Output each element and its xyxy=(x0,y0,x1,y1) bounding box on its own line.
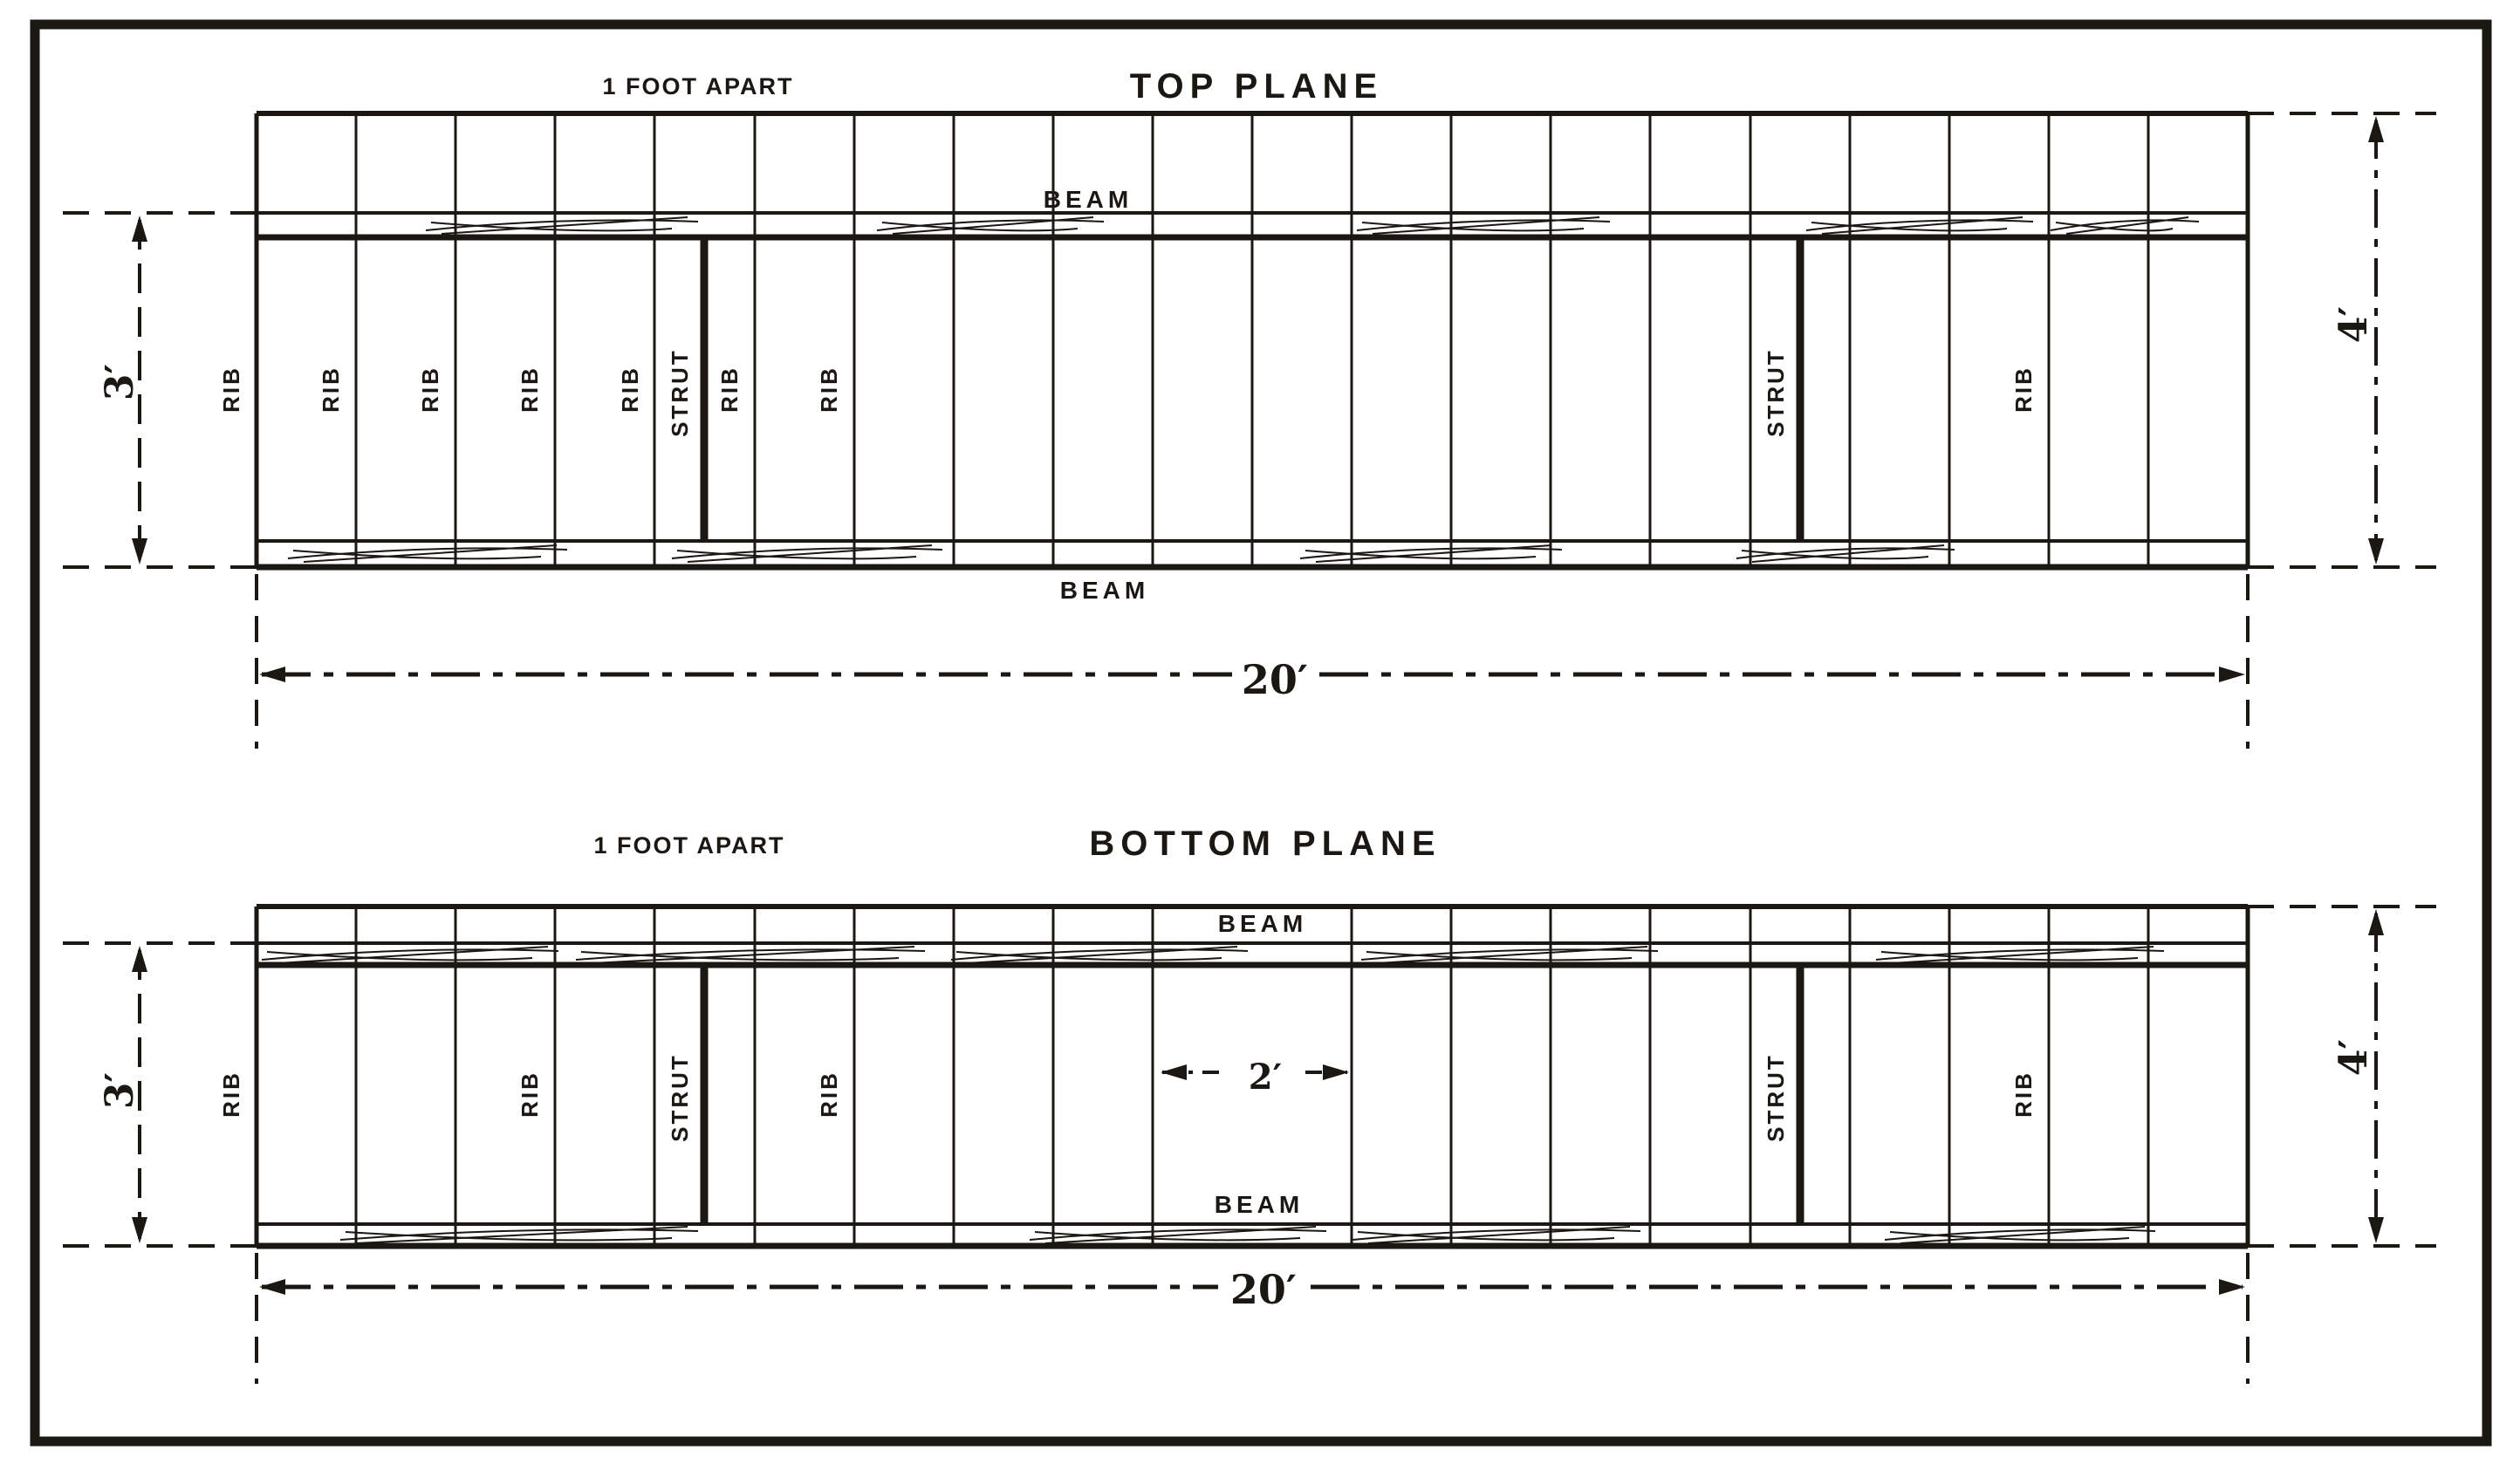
bottom-plane-chord-dimension: 4′ xyxy=(2248,907,2436,1246)
arrowhead-up xyxy=(132,946,147,972)
top-plane-front-beam-label: BEAM xyxy=(1044,186,1133,213)
strut-label: STRUT xyxy=(1763,348,1789,437)
top-plane-span-dimension: 20′ xyxy=(257,574,2248,749)
depth-value: 3′ xyxy=(98,1072,142,1109)
rib-label: RIB xyxy=(417,366,443,413)
rib-label: RIB xyxy=(2010,1071,2037,1118)
arrowhead-left xyxy=(259,667,285,682)
rib-label: RIB xyxy=(517,1071,543,1118)
bottom-plane-span-dimension: 20′ xyxy=(257,1253,2248,1384)
strut-label: STRUT xyxy=(1763,1053,1789,1142)
top-plane-spacing-note: 1 FOOT APART xyxy=(603,73,794,99)
arrowhead-up xyxy=(132,216,147,242)
bottom-plane-bay-dimension: 2′ xyxy=(1162,1057,1347,1098)
bottom-plane: 1 FOOT APART BOTTOM PLANE BEAM BEAM RIB … xyxy=(63,825,2436,1384)
scanned-page: 1 FOOT APART TOP PLANE BEAM BEAM RIB RIB… xyxy=(0,0,2520,1478)
bottom-plane-spacing-note: 1 FOOT APART xyxy=(594,832,785,859)
rib-label: RIB xyxy=(318,366,344,413)
arrowhead-down xyxy=(2368,1217,2384,1243)
top-plane: 1 FOOT APART TOP PLANE BEAM BEAM RIB RIB… xyxy=(63,67,2436,749)
rib-label: RIB xyxy=(816,1071,842,1118)
arrowhead-left xyxy=(1161,1064,1187,1080)
top-plane-beam-wood-grain xyxy=(288,217,2199,562)
bottom-plane-rear-beam-label: BEAM xyxy=(1215,1191,1304,1218)
strut-label: STRUT xyxy=(667,348,693,437)
wing-rigging-diagram: 1 FOOT APART TOP PLANE BEAM BEAM RIB RIB… xyxy=(0,0,2520,1478)
top-plane-chord-dimension: 4′ xyxy=(2248,113,2436,567)
rib-label: RIB xyxy=(517,366,543,413)
top-plane-title: TOP PLANE xyxy=(1130,67,1383,106)
bottom-plane-title: BOTTOM PLANE xyxy=(1089,825,1441,863)
arrowhead-right xyxy=(2219,667,2245,682)
rib-label: RIB xyxy=(218,366,244,413)
depth-value: 3′ xyxy=(98,364,142,400)
rib-label: RIB xyxy=(218,1071,244,1118)
span-value: 20′ xyxy=(1230,1266,1297,1313)
arrowhead-right xyxy=(2219,1279,2245,1295)
top-plane-ribs xyxy=(257,113,2248,567)
arrowhead-down xyxy=(132,538,147,565)
arrowhead-up xyxy=(2368,116,2384,142)
arrowhead-left xyxy=(259,1279,285,1295)
arrowhead-down xyxy=(2368,538,2384,565)
rib-label: RIB xyxy=(816,366,842,413)
rib-label: RIB xyxy=(716,366,743,413)
span-value: 20′ xyxy=(1242,656,1308,703)
top-plane-rear-beam-label: BEAM xyxy=(1060,577,1149,604)
rib-label: RIB xyxy=(617,366,643,413)
chord-value: 4′ xyxy=(2332,306,2376,343)
rib-label: RIB xyxy=(2010,366,2037,413)
arrowhead-down xyxy=(132,1217,147,1243)
dimension-arrowheads xyxy=(132,116,2384,1295)
bottom-plane-beam-wood-grain xyxy=(262,947,2164,1243)
arrowhead-up xyxy=(2368,909,2384,935)
strut-label: STRUT xyxy=(667,1053,693,1142)
bottom-plane-front-beam-label: BEAM xyxy=(1218,910,1307,937)
arrowhead-right xyxy=(1323,1064,1349,1080)
chord-value: 4′ xyxy=(2332,1039,2376,1076)
bay-value: 2′ xyxy=(1249,1057,1282,1098)
